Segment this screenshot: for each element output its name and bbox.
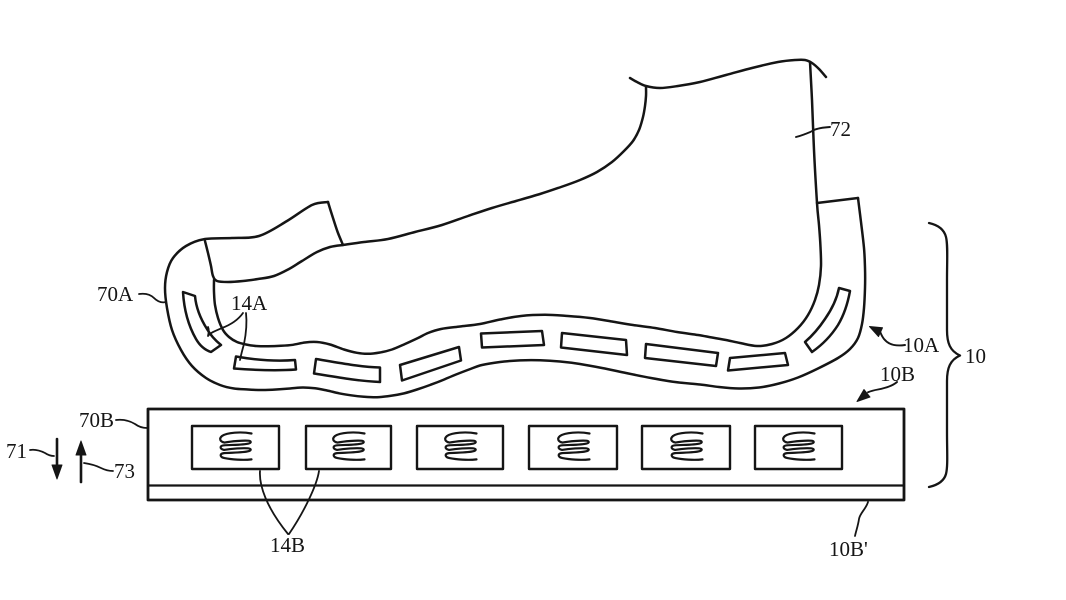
svg-text:70B: 70B	[79, 408, 114, 432]
svg-text:10: 10	[965, 344, 986, 368]
svg-text:14A: 14A	[231, 291, 268, 315]
svg-text:70A: 70A	[97, 282, 134, 306]
svg-text:73: 73	[114, 459, 135, 483]
svg-text:71: 71	[6, 439, 27, 463]
svg-text:72: 72	[830, 117, 851, 141]
svg-text:10B': 10B'	[829, 537, 868, 561]
svg-text:10A: 10A	[903, 333, 940, 357]
svg-text:14B: 14B	[270, 533, 305, 557]
